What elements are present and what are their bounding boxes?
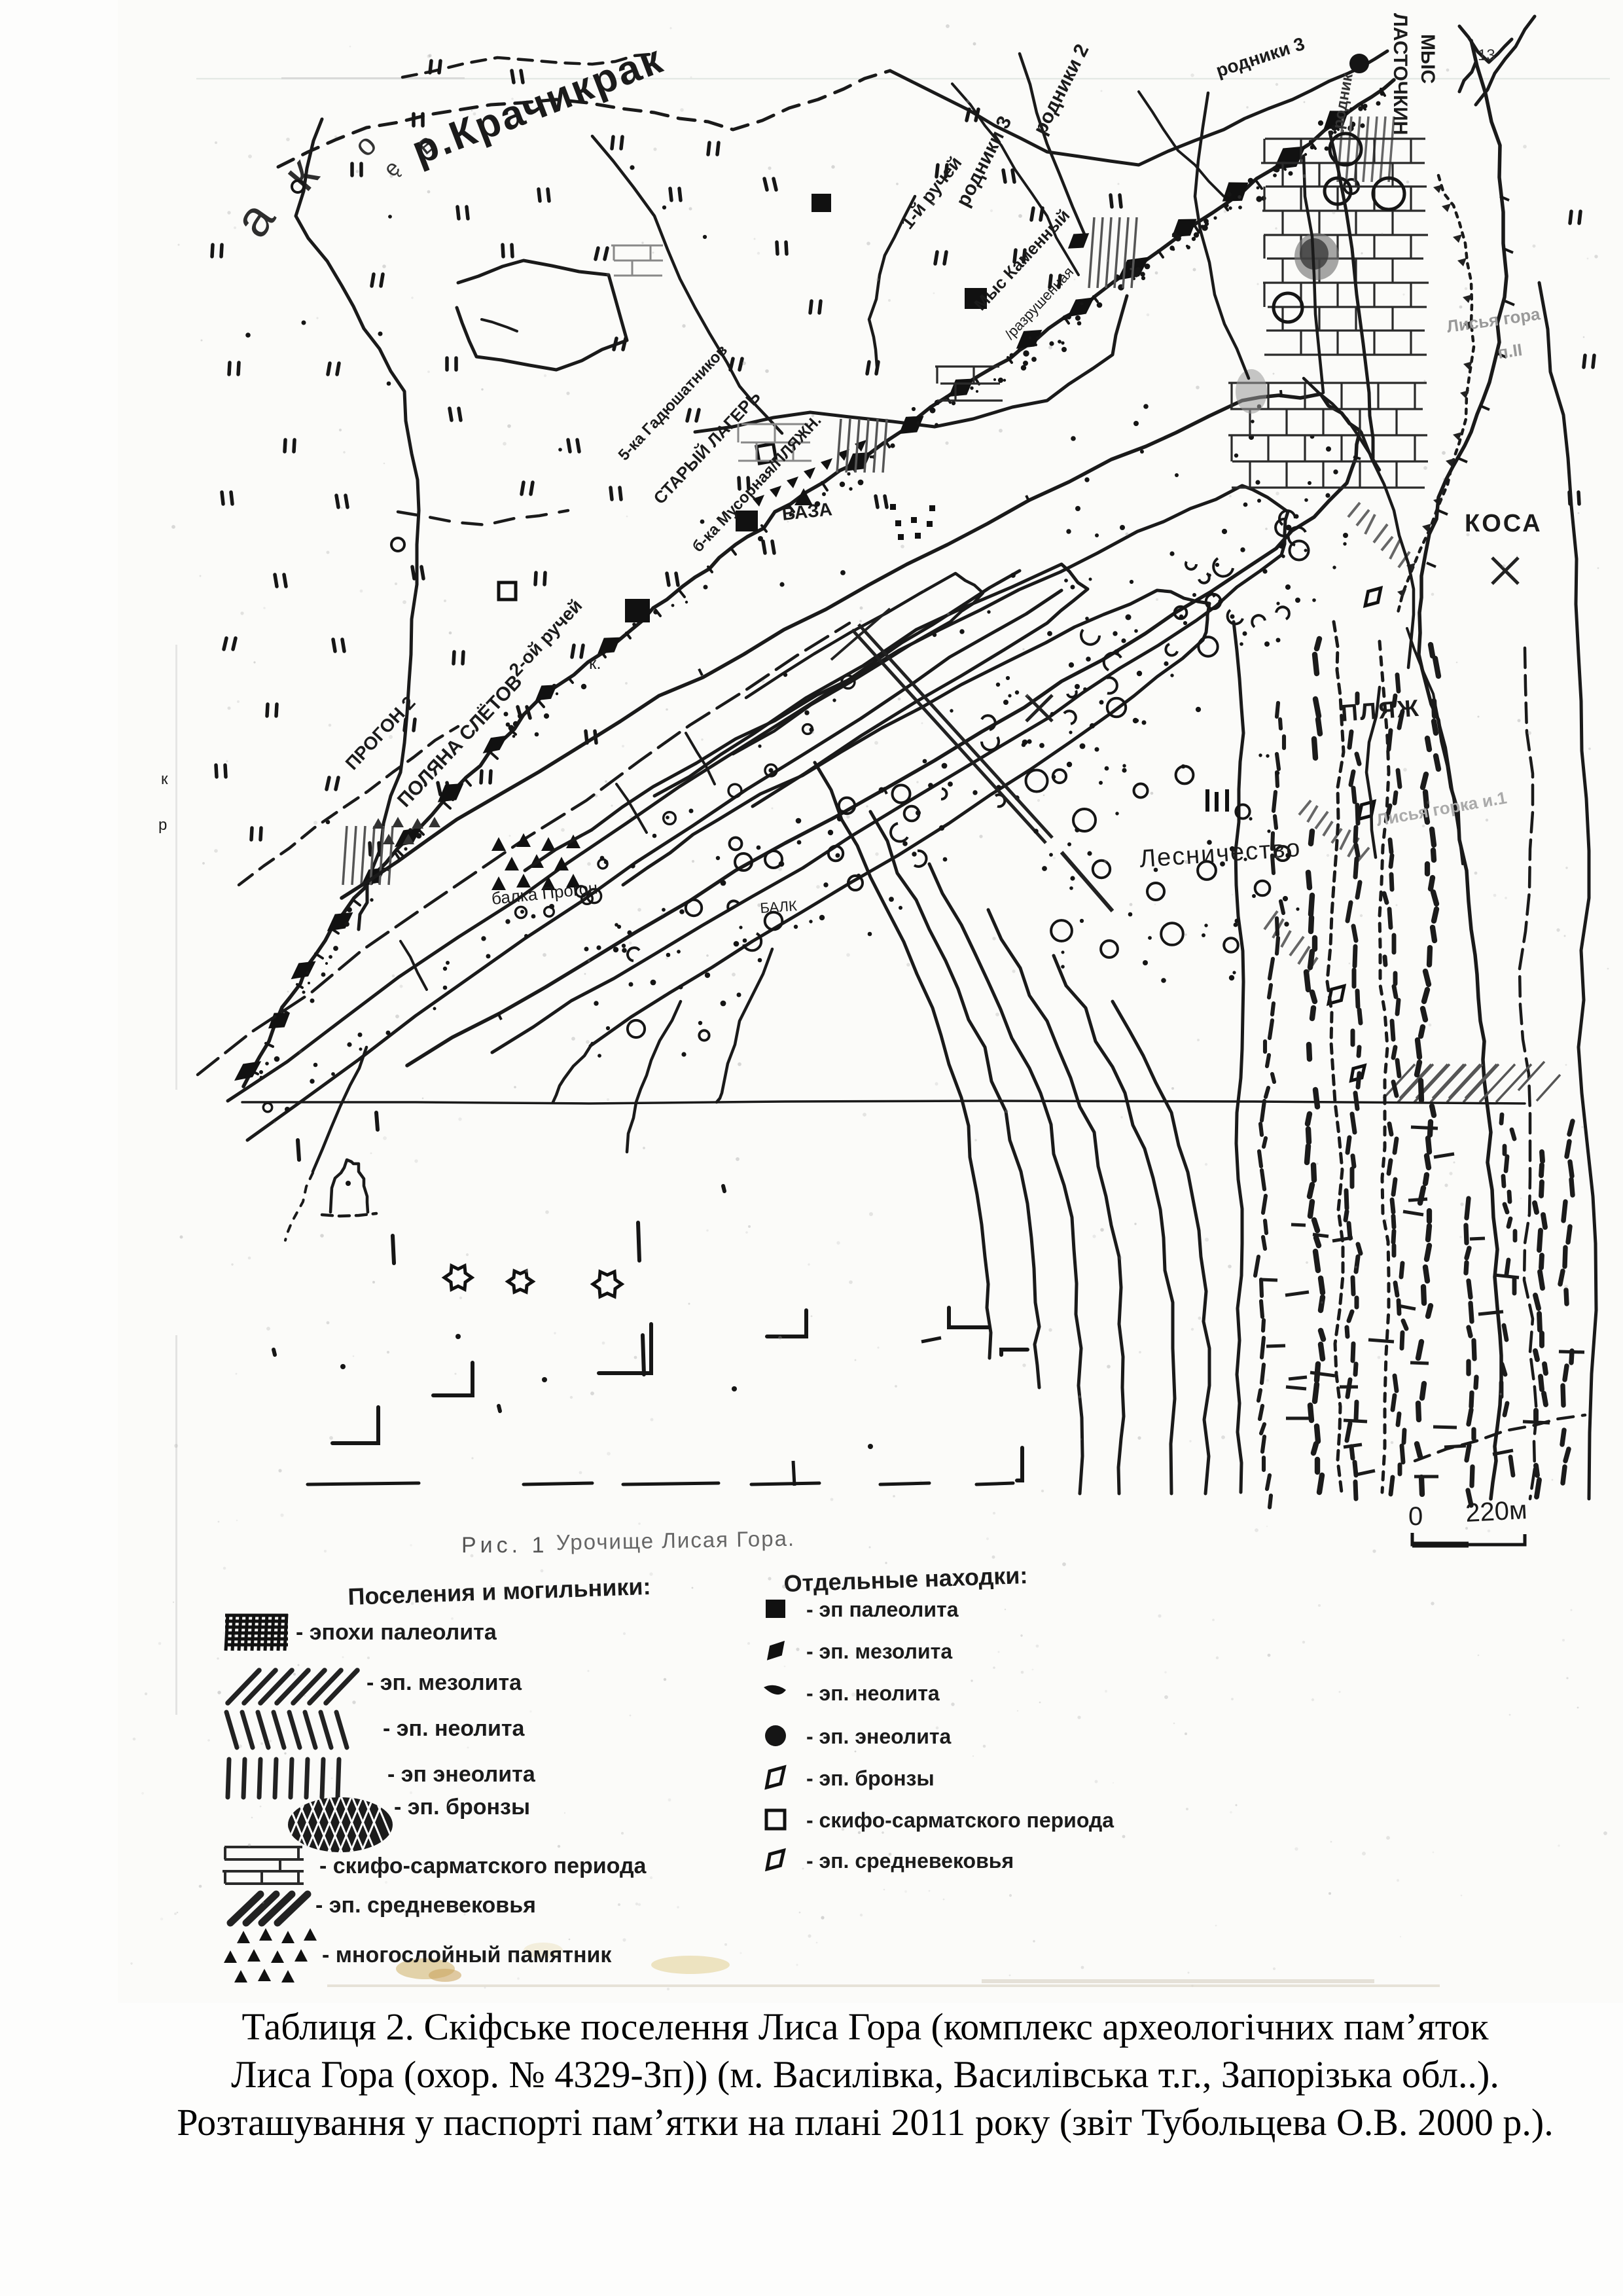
svg-text:КОСА: КОСА	[1465, 510, 1543, 537]
svg-text:Лиса Гора (охор. № 4329-Зп)) (: Лиса Гора (охор. № 4329-Зп)) (м. Василів…	[231, 2053, 1499, 2096]
svg-text:220м: 220м	[1465, 1496, 1527, 1528]
svg-text:п.II: п.II	[1497, 340, 1524, 363]
svg-text:- эп. средневековья: - эп. средневековья	[315, 1893, 536, 1918]
svg-text:к: к	[161, 770, 168, 788]
svg-text:0: 0	[1408, 1502, 1423, 1531]
svg-text:- эп палеолита: - эп палеолита	[806, 1598, 959, 1621]
svg-text:- скифо-сарматского периода: - скифо-сарматского периода	[806, 1808, 1114, 1832]
svg-text:- эп. неолита: - эп. неолита	[383, 1716, 525, 1741]
svg-text:- эп. бронзы: - эп. бронзы	[394, 1795, 530, 1820]
svg-text:Урочище Лисая Гора.: Урочище Лисая Гора.	[556, 1526, 795, 1554]
svg-text:р: р	[158, 816, 167, 834]
svg-text:Рис. 1: Рис. 1	[461, 1533, 548, 1558]
svg-text:к.: к.	[589, 653, 601, 673]
svg-text:- эп. неолита: - эп. неолита	[806, 1681, 940, 1705]
svg-text:- многослойный памятник: - многослойный памятник	[322, 1943, 612, 1967]
svg-text:- эп. средневековья: - эп. средневековья	[806, 1849, 1014, 1873]
svg-text:- скифо-сарматского периода: - скифо-сарматского периода	[319, 1854, 647, 1878]
svg-text:ЛАСТОЧКИН: ЛАСТОЧКИН	[1389, 13, 1411, 135]
svg-text:Таблиця 2. Скіфське поселення: Таблиця 2. Скіфське поселення Лиса Гора …	[241, 2005, 1489, 2048]
svg-text:- эп. бронзы: - эп. бронзы	[806, 1767, 935, 1790]
svg-text:ПЛЯЖ: ПЛЯЖ	[1340, 694, 1421, 726]
svg-text:МЫС: МЫС	[1417, 34, 1438, 84]
svg-text:- эпохи палеолита: - эпохи палеолита	[296, 1620, 497, 1645]
svg-text:Розташування у паспорті пам’ят: Розташування у паспорті пам’ятки на план…	[177, 2101, 1554, 2144]
svg-text:БАЛК: БАЛК	[760, 897, 798, 916]
svg-text:13: 13	[1478, 46, 1495, 64]
svg-text:- эп. мезолита: - эп. мезолита	[366, 1670, 522, 1695]
svg-text:- эп энеолита: - эп энеолита	[387, 1762, 536, 1787]
svg-text:- эп. энеолита: - эп. энеолита	[806, 1725, 952, 1748]
